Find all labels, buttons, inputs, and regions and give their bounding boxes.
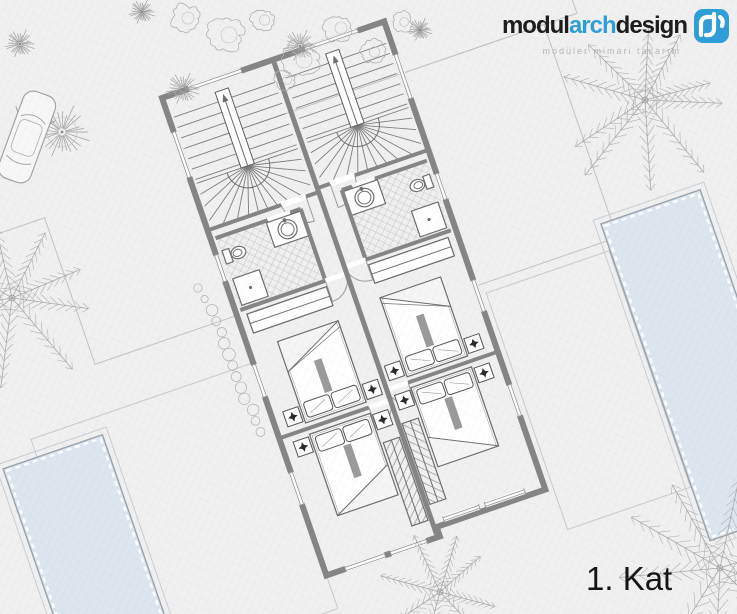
site-plan-svg [0,0,737,614]
logo-word-design: design [616,12,687,39]
floor-plan [151,15,560,582]
logo-text: modularchdesign [502,12,687,40]
logo-word-modul: modul [502,12,569,39]
site-plan-page: modularchdesign modüler mimari tasarım 1… [0,0,737,614]
logo-row: modularchdesign [502,7,731,45]
logo-word-arch: arch [569,12,616,39]
pool-left [0,427,219,614]
pool-right [593,182,737,548]
floor-label: 1. Kat [586,560,672,598]
logo-tagline: modüler mimari tasarım [502,46,731,56]
logo-icon [693,7,731,45]
logo: modularchdesign modüler mimari tasarım [502,7,731,56]
